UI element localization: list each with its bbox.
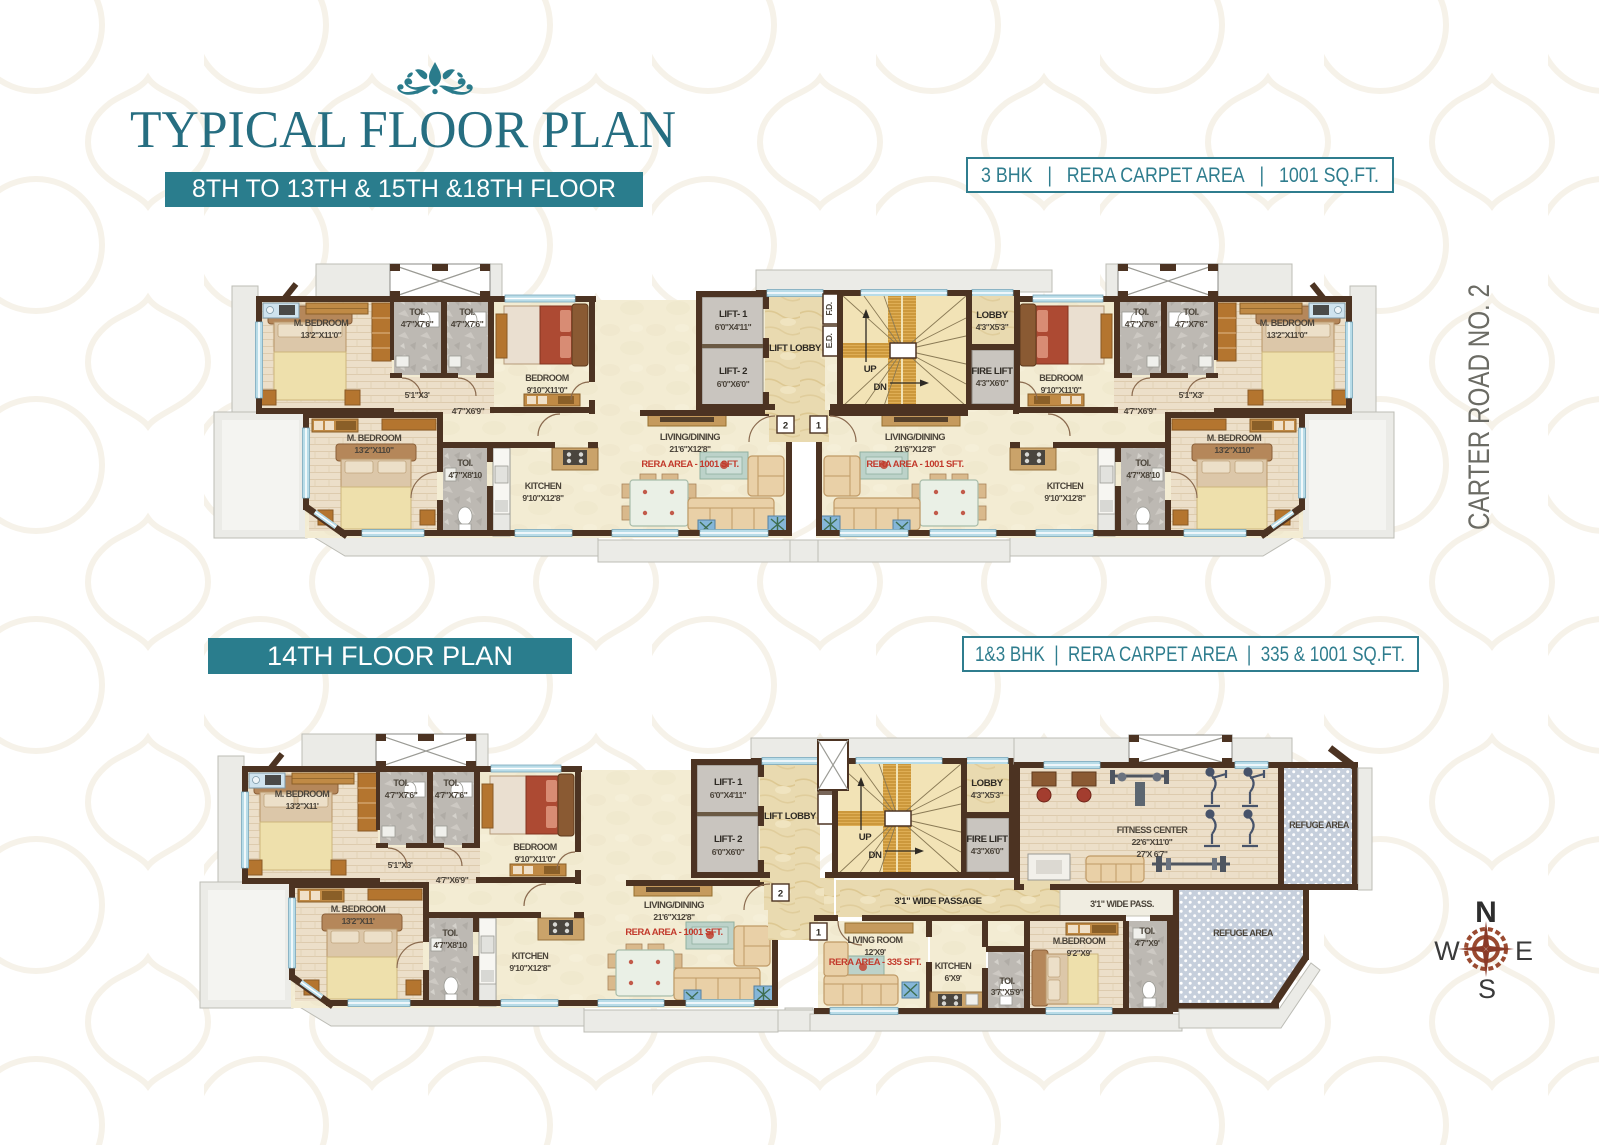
- svg-text:4'7"X8'10: 4'7"X8'10: [433, 940, 467, 950]
- svg-text:4'7"X8'10: 4'7"X8'10: [1126, 470, 1160, 480]
- svg-text:3'7"X5'9": 3'7"X5'9": [991, 987, 1024, 997]
- svg-text:BEDROOM: BEDROOM: [1039, 373, 1083, 383]
- svg-text:1: 1: [816, 421, 822, 432]
- svg-text:TYPICAL FLOOR PLAN: TYPICAL FLOOR PLAN: [130, 101, 676, 159]
- svg-text:BEDROOM: BEDROOM: [513, 842, 557, 852]
- svg-text:LIFT- 1: LIFT- 1: [714, 777, 743, 788]
- svg-text:TOI.: TOI.: [1183, 307, 1198, 317]
- svg-text:RERA AREA - 335 SFT.: RERA AREA - 335 SFT.: [829, 956, 922, 967]
- svg-text:TOI.: TOI.: [443, 778, 458, 788]
- svg-text:4'7"X7'6": 4'7"X7'6": [385, 790, 418, 800]
- svg-text:4'7"X6'9": 4'7"X6'9": [1124, 406, 1157, 416]
- svg-text:4'7"X7'6": 4'7"X7'6": [1125, 319, 1158, 329]
- svg-text:M. BEDROOM: M. BEDROOM: [331, 904, 386, 914]
- svg-text:LIFT LOBBY: LIFT LOBBY: [769, 343, 822, 354]
- svg-text:DN: DN: [873, 382, 887, 393]
- svg-text:9'2"X9': 9'2"X9': [1067, 948, 1092, 958]
- svg-text:5'1"X3': 5'1"X3': [405, 390, 430, 400]
- svg-text:2: 2: [783, 421, 788, 432]
- svg-text:5'1"X3': 5'1"X3': [1179, 390, 1204, 400]
- svg-text:S: S: [1478, 974, 1496, 1004]
- svg-text:1&3 BHK | RERA CARPET AREA: 1&3 BHK | RERA CARPET AREA | 335 & 1001 …: [975, 643, 1405, 666]
- svg-text:9'10"X11'0": 9'10"X11'0": [1041, 385, 1082, 395]
- svg-text:RERA AREA - 1001 SFT.: RERA AREA - 1001 SFT.: [625, 926, 722, 937]
- svg-text:27'X 6'7": 27'X 6'7": [1137, 849, 1168, 859]
- svg-text:LIVING/DINING: LIVING/DINING: [644, 899, 704, 910]
- svg-text:4'7"X7'6": 4'7"X7'6": [1175, 319, 1208, 329]
- svg-text:BEDROOM: BEDROOM: [525, 373, 569, 383]
- svg-text:9'10"X11'0": 9'10"X11'0": [515, 854, 556, 864]
- svg-text:8TH TO 13TH & 15TH &18TH FLOOR: 8TH TO 13TH & 15TH &18TH FLOOR: [192, 175, 616, 203]
- svg-text:2: 2: [778, 889, 783, 900]
- svg-text:3 BHK | RERA CARPET AREA: 3 BHK | RERA CARPET AREA | 1001 SQ.FT.: [981, 164, 1379, 187]
- svg-text:KITCHEN: KITCHEN: [935, 961, 972, 971]
- svg-text:TOI.: TOI.: [999, 976, 1014, 986]
- svg-text:6'0"X6'0": 6'0"X6'0": [712, 847, 745, 857]
- svg-text:M. BEDROOM: M. BEDROOM: [1207, 433, 1262, 443]
- svg-text:4'3"X5'3": 4'3"X5'3": [976, 322, 1009, 332]
- svg-text:N: N: [1475, 896, 1497, 929]
- svg-text:13'2"X110": 13'2"X110": [354, 445, 394, 455]
- svg-text:LIVING ROOM: LIVING ROOM: [848, 935, 903, 945]
- svg-text:4'7"X9': 4'7"X9': [1135, 938, 1160, 948]
- svg-text:F.D.: F.D.: [824, 302, 834, 315]
- svg-text:9'10"X11'0": 9'10"X11'0": [527, 385, 568, 395]
- svg-text:M. BEDROOM: M. BEDROOM: [347, 433, 402, 443]
- svg-text:3'1" WIDE PASS.: 3'1" WIDE PASS.: [1090, 899, 1154, 909]
- svg-text:4'7"X7'6": 4'7"X7'6": [451, 319, 484, 329]
- svg-text:REFUGE AREA: REFUGE AREA: [1289, 820, 1350, 830]
- svg-text:9'10"X12'8": 9'10"X12'8": [522, 493, 564, 503]
- svg-text:TOI.: TOI.: [1133, 307, 1148, 317]
- svg-text:14TH FLOOR PLAN: 14TH FLOOR PLAN: [267, 641, 513, 671]
- svg-text:TOI.: TOI.: [457, 458, 472, 468]
- svg-text:W: W: [1434, 936, 1460, 966]
- svg-text:KITCHEN: KITCHEN: [512, 951, 549, 961]
- svg-text:LIVING/DINING: LIVING/DINING: [885, 431, 945, 442]
- svg-text:DN: DN: [868, 850, 882, 861]
- svg-text:LIFT LOBBY: LIFT LOBBY: [764, 811, 817, 822]
- svg-text:6'0"X6'0": 6'0"X6'0": [717, 379, 750, 389]
- svg-text:TOI.: TOI.: [442, 928, 457, 938]
- svg-text:3'1" WIDE PASSAGE: 3'1" WIDE PASSAGE: [894, 896, 982, 907]
- svg-text:LOBBY: LOBBY: [971, 778, 1004, 789]
- svg-text:M. BEDROOM: M. BEDROOM: [275, 789, 330, 799]
- svg-text:6'X9': 6'X9': [945, 973, 962, 983]
- svg-text:E: E: [1515, 936, 1533, 966]
- svg-text:LIFT- 1: LIFT- 1: [719, 309, 748, 320]
- svg-text:22'6"X11'0": 22'6"X11'0": [1132, 837, 1173, 847]
- svg-text:CARTER ROAD NO. 2: CARTER ROAD NO. 2: [1463, 284, 1496, 530]
- svg-text:RERA AREA - 1001 SFT.: RERA AREA - 1001 SFT.: [641, 458, 738, 469]
- svg-text:4'7"X8'10: 4'7"X8'10: [448, 470, 482, 480]
- svg-text:LIVING/DINING: LIVING/DINING: [660, 431, 720, 442]
- svg-text:4'7"X7'6": 4'7"X7'6": [435, 790, 468, 800]
- svg-text:TOI.: TOI.: [1139, 926, 1154, 936]
- svg-text:1: 1: [816, 928, 822, 939]
- svg-text:21'6"X12'8": 21'6"X12'8": [669, 444, 711, 454]
- svg-text:UP: UP: [859, 832, 873, 843]
- svg-text:E.D.: E.D.: [824, 334, 834, 349]
- svg-text:FIRE LIFT: FIRE LIFT: [966, 834, 1008, 845]
- svg-text:LIFT- 2: LIFT- 2: [714, 834, 742, 845]
- svg-text:FIRE LIFT: FIRE LIFT: [971, 366, 1013, 377]
- svg-text:4'3"X6'0": 4'3"X6'0": [971, 846, 1004, 856]
- svg-text:M.BEDROOM: M.BEDROOM: [1053, 936, 1106, 946]
- svg-text:TOI.: TOI.: [459, 307, 474, 317]
- svg-text:4'3"X5'3": 4'3"X5'3": [971, 790, 1004, 800]
- svg-text:TOI.: TOI.: [393, 778, 408, 788]
- svg-text:21'6"X12'8": 21'6"X12'8": [653, 912, 695, 922]
- svg-text:6'0"X4'11": 6'0"X4'11": [710, 790, 747, 800]
- svg-text:FITNESS CENTER: FITNESS CENTER: [1117, 825, 1189, 835]
- svg-text:4'3"X6'0": 4'3"X6'0": [976, 378, 1009, 388]
- svg-text:4'7"X7'6": 4'7"X7'6": [401, 319, 434, 329]
- svg-text:KITCHEN: KITCHEN: [1047, 481, 1084, 491]
- svg-text:4'7"X6'9": 4'7"X6'9": [452, 406, 485, 416]
- svg-text:13'2"X11'0": 13'2"X11'0": [301, 330, 342, 340]
- svg-text:13'2"X11': 13'2"X11': [342, 916, 375, 926]
- svg-text:9'10"X12'8": 9'10"X12'8": [509, 963, 551, 973]
- svg-text:TOI.: TOI.: [409, 307, 424, 317]
- svg-text:M. BEDROOM: M. BEDROOM: [294, 318, 349, 328]
- svg-text:13'2"X11': 13'2"X11': [286, 801, 319, 811]
- svg-text:LIFT- 2: LIFT- 2: [719, 366, 747, 377]
- svg-text:LOBBY: LOBBY: [976, 310, 1009, 321]
- svg-text:13'2"X110": 13'2"X110": [1214, 445, 1254, 455]
- svg-text:21'6"X12'8": 21'6"X12'8": [894, 444, 936, 454]
- svg-text:M. BEDROOM: M. BEDROOM: [1260, 318, 1315, 328]
- svg-text:6'0"X4'11": 6'0"X4'11": [715, 322, 752, 332]
- svg-text:9'10"X12'8": 9'10"X12'8": [1044, 493, 1086, 503]
- svg-text:REFUGE AREA: REFUGE AREA: [1213, 928, 1274, 938]
- svg-text:UP: UP: [864, 364, 878, 375]
- svg-text:13'2"X11'0": 13'2"X11'0": [1267, 330, 1308, 340]
- svg-text:RERA AREA - 1001 SFT.: RERA AREA - 1001 SFT.: [866, 458, 963, 469]
- svg-text:4'7"X6'9": 4'7"X6'9": [436, 875, 469, 885]
- svg-text:TOI.: TOI.: [1135, 458, 1150, 468]
- svg-text:5'1"X3': 5'1"X3': [388, 860, 413, 870]
- svg-text:KITCHEN: KITCHEN: [525, 481, 562, 491]
